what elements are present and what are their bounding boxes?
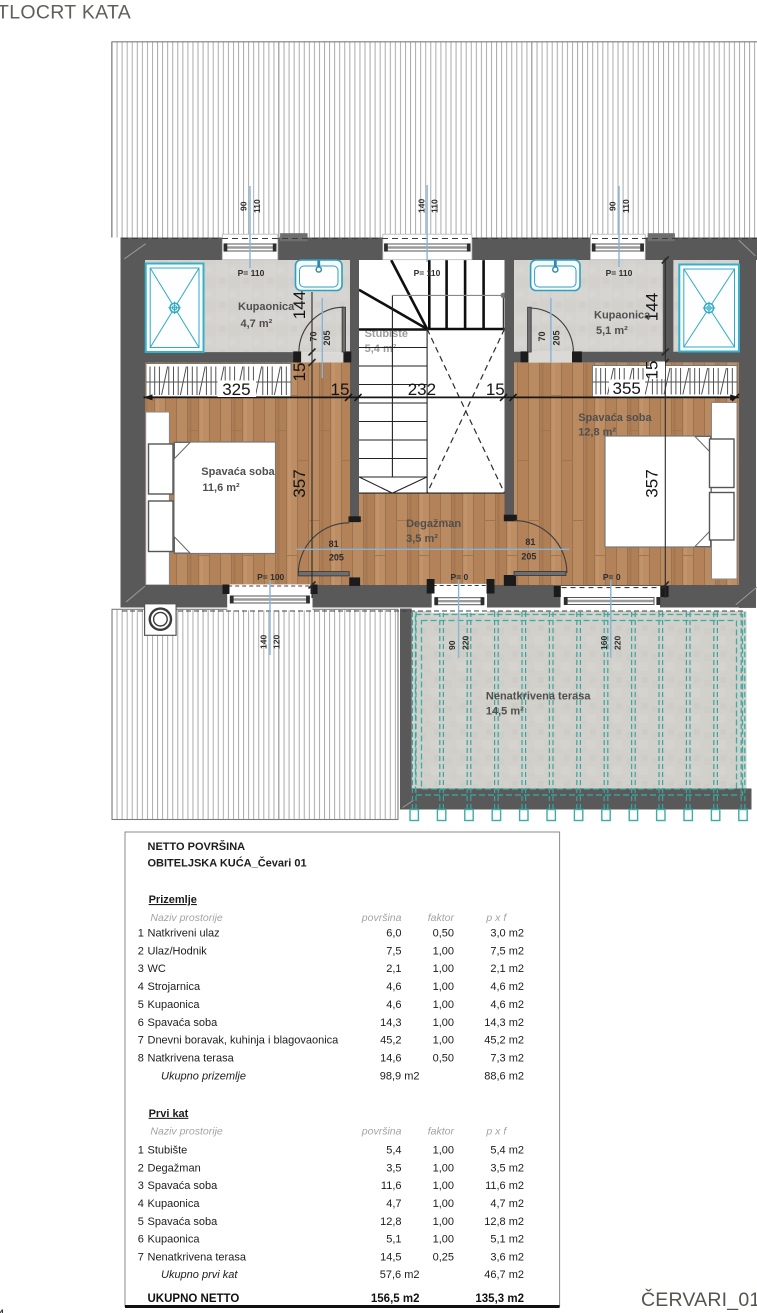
svg-text:90: 90 [447, 640, 457, 650]
svg-text:1,00: 1,00 [433, 963, 454, 975]
svg-text:5,1 m2: 5,1 m2 [490, 1234, 524, 1246]
svg-text:1,00: 1,00 [433, 1180, 454, 1192]
svg-text:15: 15 [486, 380, 505, 399]
svg-text:4: 4 [138, 981, 144, 993]
svg-text:Stubište: Stubište [148, 1145, 188, 1157]
svg-text:110: 110 [621, 199, 631, 213]
svg-text:P= 0: P= 0 [451, 572, 469, 582]
svg-text:1,00: 1,00 [433, 999, 454, 1011]
svg-text:357: 357 [290, 469, 309, 497]
svg-text:Degažman: Degažman [406, 518, 461, 530]
svg-text:5,1 m²: 5,1 m² [596, 325, 628, 337]
svg-text:Natkrivena terasa: Natkrivena terasa [148, 1052, 235, 1064]
svg-text:98,9 m2: 98,9 m2 [380, 1070, 420, 1082]
svg-text:4: 4 [138, 1198, 144, 1210]
svg-text:p x f: p x f [485, 912, 507, 924]
svg-text:81: 81 [525, 537, 535, 547]
svg-text:Ukupno prvi kat: Ukupno prvi kat [161, 1269, 238, 1281]
svg-text:Dnevni boravak, kuhinja i blag: Dnevni boravak, kuhinja i blagovaonica [148, 1035, 340, 1047]
svg-text:6: 6 [138, 1017, 144, 1029]
svg-text:14,3: 14,3 [380, 1017, 401, 1029]
svg-text:220: 220 [461, 636, 471, 650]
svg-text:2: 2 [138, 1162, 144, 1174]
svg-text:4,6 m2: 4,6 m2 [490, 981, 524, 993]
svg-text:1,00: 1,00 [433, 1216, 454, 1228]
svg-text:faktor: faktor [428, 1126, 455, 1138]
svg-text:15: 15 [290, 363, 309, 382]
svg-text:P= 110: P= 110 [414, 268, 441, 278]
svg-text:4,6: 4,6 [386, 999, 401, 1011]
svg-text:5: 5 [138, 999, 144, 1011]
svg-text:WC: WC [148, 963, 166, 975]
svg-text:7,5: 7,5 [386, 945, 401, 957]
svg-text:120: 120 [272, 635, 282, 649]
svg-text:0,25: 0,25 [433, 1251, 454, 1263]
svg-text:Kupaonica: Kupaonica [594, 310, 651, 322]
svg-text:5: 5 [138, 1216, 144, 1228]
svg-text:3,5 m²: 3,5 m² [406, 533, 438, 545]
svg-text:14,3 m2: 14,3 m2 [484, 1017, 524, 1029]
svg-text:14,5 m²: 14,5 m² [486, 706, 524, 718]
svg-text:7: 7 [138, 1035, 144, 1047]
svg-text:4,7: 4,7 [386, 1198, 401, 1210]
svg-text:3,5: 3,5 [386, 1162, 401, 1174]
svg-text:5,4 m2: 5,4 m2 [490, 1145, 524, 1157]
svg-text:P= 110: P= 110 [238, 268, 265, 278]
svg-text:Prvi kat: Prvi kat [149, 1108, 189, 1120]
svg-text:5,4: 5,4 [386, 1145, 401, 1157]
svg-text:Natkriveni ulaz: Natkriveni ulaz [148, 928, 220, 940]
svg-text:11,6 m2: 11,6 m2 [485, 1180, 524, 1192]
svg-text:P= 0: P= 0 [603, 572, 621, 582]
svg-text:Ukupno prizemlje: Ukupno prizemlje [161, 1070, 246, 1082]
svg-text:3: 3 [138, 963, 144, 975]
svg-text:4,6 m2: 4,6 m2 [490, 999, 524, 1011]
svg-text:1,00: 1,00 [433, 1234, 454, 1246]
svg-text:7,5 m2: 7,5 m2 [490, 945, 524, 957]
svg-text:46,7 m2: 46,7 m2 [484, 1269, 524, 1281]
svg-text:70: 70 [537, 331, 547, 341]
svg-text:4,7 m²: 4,7 m² [241, 318, 273, 330]
svg-text:15: 15 [331, 380, 350, 399]
svg-text:UKUPNO NETTO: UKUPNO NETTO [148, 1293, 240, 1305]
svg-text:1: 1 [138, 928, 144, 940]
svg-text:1,00: 1,00 [433, 1145, 454, 1157]
svg-text:3,5 m2: 3,5 m2 [490, 1162, 524, 1174]
svg-text:355: 355 [613, 379, 641, 398]
svg-text:205: 205 [552, 330, 562, 345]
svg-text:p x f: p x f [485, 1126, 507, 1138]
svg-text:81: 81 [329, 539, 339, 549]
svg-text:Naziv prostorije: Naziv prostorije [150, 1126, 223, 1138]
svg-text:140: 140 [417, 199, 427, 213]
svg-text:1,00: 1,00 [433, 1162, 454, 1174]
svg-text:3,0 m2: 3,0 m2 [490, 928, 524, 940]
svg-text:90: 90 [608, 201, 618, 211]
svg-text:faktor: faktor [428, 912, 455, 924]
svg-text:NETTO POVRŠINA: NETTO POVRŠINA [148, 840, 246, 853]
svg-text:7,3 m2: 7,3 m2 [490, 1052, 524, 1064]
svg-text:Nenatkrivena terasa: Nenatkrivena terasa [148, 1251, 247, 1263]
svg-text:2,1 m2: 2,1 m2 [490, 963, 524, 975]
svg-text:Kupaonica: Kupaonica [238, 301, 295, 313]
svg-text:140: 140 [259, 635, 269, 649]
svg-text:Kupaonica: Kupaonica [148, 999, 201, 1011]
svg-text:7: 7 [138, 1251, 144, 1263]
svg-text:220: 220 [613, 636, 623, 650]
svg-text:3: 3 [138, 1180, 144, 1192]
svg-text:4,7 m2: 4,7 m2 [490, 1198, 524, 1210]
svg-text:15: 15 [643, 361, 662, 380]
svg-text:4: 4 [0, 1306, 5, 1313]
svg-text:Degažman: Degažman [148, 1162, 201, 1174]
svg-text:3,6 m2: 3,6 m2 [490, 1251, 524, 1263]
svg-text:Prizemlje: Prizemlje [149, 894, 197, 906]
svg-text:5,1: 5,1 [386, 1234, 401, 1246]
svg-text:Spavaća soba: Spavaća soba [148, 1017, 219, 1029]
svg-text:Spavaća soba: Spavaća soba [148, 1216, 219, 1228]
svg-text:6: 6 [138, 1234, 144, 1246]
svg-text:Spavaća soba: Spavaća soba [148, 1180, 219, 1192]
svg-text:Kupaonica: Kupaonica [148, 1234, 201, 1246]
svg-text:1,00: 1,00 [433, 981, 454, 993]
svg-text:14,5: 14,5 [380, 1251, 401, 1263]
svg-text:205: 205 [322, 330, 332, 345]
svg-text:90: 90 [239, 201, 249, 211]
svg-text:12,8 m2: 12,8 m2 [484, 1216, 524, 1228]
svg-text:1,00: 1,00 [433, 1017, 454, 1029]
svg-text:45,2: 45,2 [380, 1035, 401, 1047]
svg-text:površina: površina [361, 1126, 402, 1138]
svg-text:11,6 m²: 11,6 m² [202, 482, 240, 494]
svg-text:4,6: 4,6 [386, 981, 401, 993]
svg-text:110: 110 [252, 199, 262, 213]
svg-text:12,8 m²: 12,8 m² [578, 427, 616, 439]
svg-text:Spavaća soba: Spavaća soba [578, 412, 652, 424]
svg-text:156,5 m2: 156,5 m2 [371, 1293, 420, 1305]
svg-text:Ulaz/Hodnik: Ulaz/Hodnik [148, 945, 208, 957]
svg-text:0,50: 0,50 [433, 928, 454, 940]
svg-text:Spavaća soba: Spavaća soba [201, 466, 275, 478]
svg-text:1,00: 1,00 [433, 1198, 454, 1210]
svg-text:Strojarnica: Strojarnica [148, 981, 201, 993]
svg-text:205: 205 [521, 552, 536, 562]
svg-text:P= 110: P= 110 [606, 268, 633, 278]
svg-text:ČERVARI_01: ČERVARI_01 [641, 1288, 757, 1311]
svg-text:110: 110 [430, 199, 440, 213]
svg-text:Nenatkrivena terasa: Nenatkrivena terasa [486, 691, 591, 703]
svg-text:70: 70 [309, 331, 319, 341]
svg-text:45,2 m2: 45,2 m2 [484, 1035, 524, 1047]
svg-text:232: 232 [408, 380, 436, 399]
svg-text:1: 1 [138, 1145, 144, 1157]
svg-text:1,00: 1,00 [433, 1035, 454, 1047]
svg-text:6,0: 6,0 [386, 928, 401, 940]
svg-text:14,6: 14,6 [380, 1052, 401, 1064]
svg-text:325: 325 [222, 380, 250, 399]
svg-text:11,6: 11,6 [381, 1180, 402, 1192]
svg-text:135,3 m2: 135,3 m2 [475, 1293, 524, 1305]
svg-text:Kupaonica: Kupaonica [148, 1198, 201, 1210]
svg-text:P= 100: P= 100 [257, 572, 284, 582]
svg-text:OBITELJSKA KUĆA_Čevari 01: OBITELJSKA KUĆA_Čevari 01 [148, 857, 307, 870]
svg-text:160: 160 [599, 636, 609, 650]
svg-text:1,00: 1,00 [433, 945, 454, 957]
svg-text:TLOCRT KATA: TLOCRT KATA [0, 2, 131, 24]
svg-text:8: 8 [138, 1052, 144, 1064]
svg-text:88,6 m2: 88,6 m2 [484, 1070, 524, 1082]
svg-text:površina: površina [361, 912, 402, 924]
svg-text:0,50: 0,50 [433, 1052, 454, 1064]
svg-text:Naziv prostorije: Naziv prostorije [150, 912, 223, 924]
svg-text:57,6 m2: 57,6 m2 [380, 1269, 420, 1281]
svg-text:205: 205 [329, 553, 344, 563]
svg-text:12,8: 12,8 [380, 1216, 401, 1228]
svg-text:357: 357 [643, 469, 662, 497]
svg-text:2: 2 [138, 945, 144, 957]
svg-text:2,1: 2,1 [386, 963, 401, 975]
